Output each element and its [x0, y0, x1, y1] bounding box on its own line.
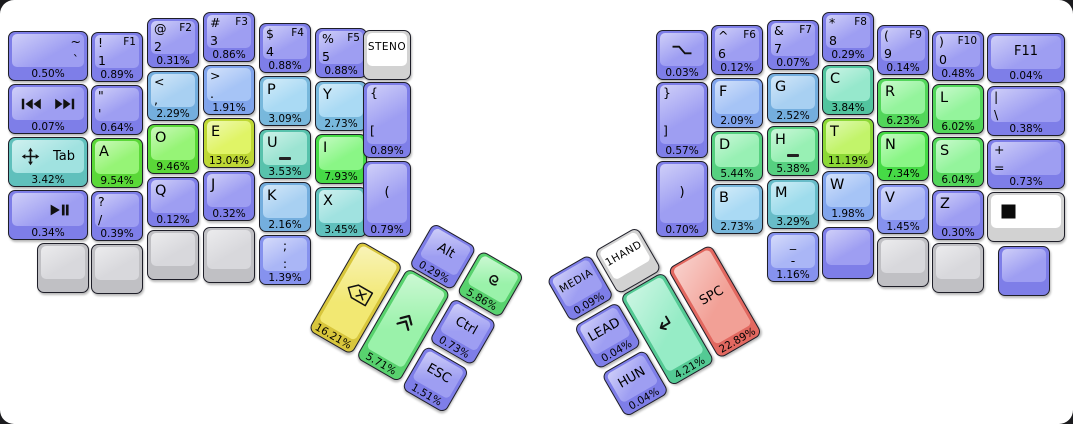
key-b[interactable]: B2.73%	[711, 184, 763, 234]
usage-percent: 7.93%	[316, 172, 366, 183]
usage-percent: 0.34%	[9, 228, 87, 239]
key-legend: O	[155, 131, 166, 146]
key-5[interactable]: %F550.88%	[315, 28, 367, 78]
key-legend: 0	[939, 54, 947, 67]
usage-percent: 11.19%	[823, 156, 873, 167]
key-face	[95, 247, 139, 280]
key-3[interactable]: #F330.86%	[203, 12, 255, 62]
key-legend: F	[719, 85, 727, 100]
key-icon-row	[661, 33, 703, 66]
key-legend: STENO	[364, 42, 410, 53]
key-legend: H	[775, 133, 786, 148]
key-legend: F4	[291, 28, 304, 39]
key-legend: "	[98, 90, 104, 103]
key-0[interactable]: )F1000.48%	[932, 31, 984, 81]
key-legend: !	[98, 37, 103, 50]
key-legend: ]	[663, 125, 668, 138]
key-f[interactable]: F2.09%	[711, 78, 763, 128]
key-legend: \	[994, 109, 998, 122]
key-legend: #	[210, 17, 220, 30]
key-legend: (	[884, 30, 889, 43]
usage-percent: 0.07%	[9, 122, 87, 133]
key-v[interactable]: V1.45%	[877, 184, 929, 234]
key-legend: F8	[854, 17, 867, 28]
usage-percent: 0.79%	[364, 225, 410, 236]
key-minus[interactable]: _-1.16%	[767, 232, 819, 282]
key-legend: V	[885, 191, 895, 206]
key-blank-r3[interactable]	[932, 243, 984, 293]
usage-percent: 0.29%	[823, 50, 873, 61]
key-l[interactable]: L6.02%	[932, 84, 984, 134]
sleep-icon	[670, 43, 694, 57]
key-legend: W	[830, 178, 844, 193]
key-legend: -	[768, 255, 818, 268]
key-legend: @	[154, 23, 167, 36]
usage-percent: 0.04%	[988, 71, 1064, 82]
key-e[interactable]: E13.04%	[203, 118, 255, 168]
key-6[interactable]: ^F660.12%	[711, 25, 763, 75]
key-comma[interactable]: <,2.29%	[147, 71, 199, 121]
usage-percent: 1.98%	[823, 209, 873, 220]
key-i[interactable]: I7.93%	[315, 134, 367, 184]
key-o[interactable]: O9.46%	[147, 124, 199, 174]
key-legend: $	[266, 28, 274, 41]
key-q[interactable]: Q0.12%	[147, 177, 199, 227]
key-blank-r4[interactable]	[998, 246, 1050, 296]
key-r[interactable]: R6.23%	[877, 78, 929, 128]
usage-percent: 1.45%	[878, 222, 928, 233]
usage-percent: 2.29%	[148, 109, 198, 120]
key-x[interactable]: X3.45%	[315, 187, 367, 237]
usage-percent: 0.38%	[988, 124, 1064, 135]
key-legend: 6	[718, 48, 726, 61]
usage-percent: 0.03%	[657, 68, 707, 79]
key-legend: 8	[829, 35, 837, 48]
enter-icon	[651, 311, 678, 337]
key-icon-row	[992, 195, 1060, 228]
key-legend: Q	[155, 184, 166, 199]
key-sleep[interactable]: 0.03%	[656, 30, 708, 80]
usage-percent: 3.29%	[768, 217, 818, 228]
key-face	[826, 230, 870, 265]
key-rbracket[interactable]: }]0.57%	[656, 82, 708, 158]
key-legend: M	[775, 186, 788, 201]
key-n[interactable]: N7.34%	[877, 131, 929, 181]
key-legend: Z	[940, 197, 950, 212]
key-legend: G	[775, 80, 786, 95]
key-2[interactable]: @F220.31%	[147, 18, 199, 68]
usage-percent: 0.86%	[204, 50, 254, 61]
key-legend: `	[73, 54, 79, 67]
key-legend: }	[663, 87, 671, 100]
usage-percent: 0.73%	[988, 177, 1064, 188]
key-legend: X	[323, 194, 333, 209]
key-legend: %	[322, 33, 334, 46]
usage-percent: 0.50%	[9, 69, 87, 80]
key-legend: =	[994, 162, 1004, 175]
key-stop[interactable]	[987, 192, 1065, 242]
key-4[interactable]: $F440.88%	[259, 23, 311, 73]
stop-square-icon	[1001, 204, 1016, 219]
usage-percent: 6.04%	[933, 175, 983, 186]
key-equals[interactable]: +=0.73%	[987, 139, 1065, 189]
key-lbracket[interactable]: {[0.89%	[363, 82, 411, 158]
usage-percent: 0.30%	[933, 228, 983, 239]
key-backslash[interactable]: |\0.38%	[987, 86, 1065, 136]
key-legend: D	[719, 138, 730, 153]
key-legend: 3	[210, 35, 218, 48]
key-legend: 7	[774, 43, 782, 56]
key-legend: )	[939, 36, 944, 49]
key-blank-l1[interactable]	[37, 243, 89, 293]
usage-percent: 3.84%	[823, 103, 873, 114]
usage-percent: 0.89%	[364, 146, 410, 157]
key-quote[interactable]: "'0.64%	[91, 85, 143, 135]
key-legend: F6	[743, 30, 756, 41]
usage-percent: 0.12%	[712, 63, 762, 74]
debian-swirl-icon	[480, 266, 506, 292]
backspace-icon	[342, 278, 374, 307]
key-s[interactable]: S6.04%	[932, 137, 984, 187]
usage-percent: 0.64%	[92, 123, 142, 134]
key-legend: (	[364, 186, 410, 199]
key-legend: R	[885, 85, 895, 100]
usage-percent: 7.34%	[878, 169, 928, 180]
key-c[interactable]: C3.84%	[822, 65, 874, 115]
usage-percent: 1.91%	[204, 103, 254, 114]
key-g[interactable]: G2.52%	[767, 73, 819, 123]
key-legend: K	[267, 189, 277, 204]
key-legend: E	[211, 125, 220, 140]
key-legend: 9	[884, 48, 892, 61]
key-legend: 5	[322, 51, 330, 64]
usage-percent: 1.39%	[260, 273, 310, 284]
key-legend: F11	[988, 45, 1064, 58]
key-legend: F10	[958, 36, 977, 47]
key-face	[41, 246, 85, 279]
play-pause-icon	[49, 203, 69, 217]
key-p[interactable]: P3.09%	[259, 76, 311, 126]
key-grave-tilde[interactable]: ~`0.50%	[8, 31, 88, 81]
key-legend: :	[260, 258, 310, 271]
homing-bar	[787, 154, 799, 156]
key-8[interactable]: *F880.29%	[822, 12, 874, 62]
key-face	[991, 89, 1061, 122]
shift-icon	[392, 306, 420, 334]
key-legend: +	[994, 144, 1004, 157]
usage-percent: 2.09%	[712, 116, 762, 127]
usage-percent: 2.52%	[768, 111, 818, 122]
key-legend: L	[940, 91, 948, 106]
usage-percent: 3.53%	[260, 167, 310, 178]
key-legend: 1	[98, 55, 106, 68]
key-legend: [	[370, 125, 375, 138]
usage-percent: 0.88%	[260, 61, 310, 72]
key-k[interactable]: K2.16%	[259, 182, 311, 232]
key-face	[881, 240, 925, 273]
usage-percent: 3.45%	[316, 225, 366, 236]
key-lparen[interactable]: (0.79%	[363, 161, 411, 237]
usage-percent: 13.04%	[204, 156, 254, 167]
key-legend: F2	[179, 23, 192, 34]
usage-percent: 0.12%	[148, 215, 198, 226]
key-legend: B	[719, 191, 729, 206]
key-u[interactable]: U3.53%	[259, 129, 311, 179]
key-legend: {	[370, 87, 378, 100]
homing-bar	[279, 157, 291, 159]
usage-percent: 6.02%	[933, 122, 983, 133]
usage-percent: 0.31%	[148, 56, 198, 67]
move-icon	[21, 147, 40, 166]
key-legend: ?	[98, 196, 105, 209]
key-a[interactable]: A9.54%	[91, 138, 143, 188]
key-blank-r2[interactable]	[877, 237, 929, 287]
key-w[interactable]: W1.98%	[822, 171, 874, 221]
key-legend: <	[154, 76, 164, 89]
keyboard-heatmap: ~`0.50%0.07%Tab3.42%0.34%!F110.89%"'0.64…	[0, 0, 1073, 424]
key-legend: F1	[123, 37, 136, 48]
key-face	[936, 246, 980, 279]
usage-percent: 3.42%	[9, 175, 87, 186]
key-legend: )	[657, 186, 707, 199]
usage-percent: 5.38%	[768, 164, 818, 175]
key-legend: N	[885, 138, 896, 153]
key-blank-l3[interactable]	[147, 230, 199, 280]
key-legend: ~	[71, 36, 81, 49]
key-legend: A	[99, 145, 109, 160]
key-legend: F7	[799, 25, 812, 36]
skip-next-icon	[54, 97, 75, 111]
key-9[interactable]: (F990.14%	[877, 25, 929, 75]
usage-percent: 0.39%	[92, 229, 142, 240]
key-legend: F3	[235, 17, 248, 28]
usage-percent: 3.09%	[260, 114, 310, 125]
key-j[interactable]: J0.32%	[203, 171, 255, 221]
usage-percent: 9.54%	[92, 176, 142, 187]
key-icon-row: Tab	[13, 140, 83, 173]
key-legend: _	[768, 237, 818, 250]
usage-percent: 0.07%	[768, 58, 818, 69]
key-tab-move[interactable]: Tab3.42%	[8, 137, 88, 187]
key-legend: ,	[154, 94, 158, 107]
usage-percent: 6.23%	[878, 116, 928, 127]
usage-percent: 0.48%	[933, 69, 983, 80]
key-y[interactable]: Y2.73%	[315, 81, 367, 131]
key-steno[interactable]: STENO	[363, 30, 411, 80]
key-face	[1002, 249, 1046, 282]
key-legend: 2	[154, 41, 162, 54]
key-legend: >	[210, 70, 220, 83]
key-legend: '	[98, 108, 101, 121]
usage-percent: 5.44%	[712, 169, 762, 180]
key-d[interactable]: D5.44%	[711, 131, 763, 181]
key-legend: P	[267, 83, 276, 98]
key-legend: |	[994, 91, 998, 104]
key-legend: C	[830, 72, 840, 87]
key-legend: J	[211, 178, 215, 193]
key-f11[interactable]: F110.04%	[987, 33, 1065, 83]
key-period[interactable]: >.1.91%	[203, 65, 255, 115]
key-legend: Tab	[53, 149, 75, 164]
key-legend: 4	[266, 46, 274, 59]
key-legend: ^	[718, 30, 728, 43]
key-legend: S	[940, 144, 949, 159]
key-t[interactable]: T11.19%	[822, 118, 874, 168]
key-h[interactable]: H5.38%	[767, 126, 819, 176]
key-legend: I	[323, 141, 327, 156]
key-icon-row	[13, 87, 83, 120]
usage-percent: 0.32%	[204, 209, 254, 220]
usage-percent: 9.46%	[148, 162, 198, 173]
key-rparen[interactable]: )0.70%	[656, 161, 708, 237]
key-legend: Y	[323, 88, 332, 103]
key-legend: ;	[260, 240, 310, 253]
usage-percent: 0.14%	[878, 63, 928, 74]
key-blank-l2[interactable]	[91, 244, 143, 294]
key-legend: T	[830, 125, 839, 140]
key-semicolon[interactable]: ;:1.39%	[259, 235, 311, 285]
usage-percent: 0.57%	[657, 146, 707, 157]
key-7[interactable]: &F770.07%	[767, 20, 819, 70]
key-icon-row	[13, 193, 83, 226]
key-legend: *	[829, 17, 835, 30]
usage-percent: 2.73%	[712, 222, 762, 233]
key-legend: .	[210, 88, 214, 101]
key-legend: F9	[909, 30, 922, 41]
key-media-prev-next[interactable]: 0.07%	[8, 84, 88, 134]
key-z[interactable]: Z0.30%	[932, 190, 984, 240]
usage-percent: 1.16%	[768, 270, 818, 281]
usage-percent: 0.89%	[92, 70, 142, 81]
key-blank-l4[interactable]	[203, 227, 255, 283]
key-legend: F5	[347, 33, 360, 44]
key-1[interactable]: !F110.89%	[91, 32, 143, 82]
key-face	[151, 233, 195, 266]
usage-percent: 0.88%	[316, 66, 366, 77]
usage-percent: 2.16%	[260, 220, 310, 231]
usage-percent: 2.73%	[316, 119, 366, 130]
key-face	[207, 230, 251, 269]
key-legend: &	[774, 25, 784, 38]
key-legend: U	[267, 136, 278, 151]
skip-previous-icon	[21, 97, 42, 111]
usage-percent: 0.70%	[657, 225, 707, 236]
key-legend: /	[98, 214, 102, 227]
key-blank-r1[interactable]	[822, 227, 874, 279]
key-m[interactable]: M3.29%	[767, 179, 819, 229]
key-slash[interactable]: ?/0.39%	[91, 191, 143, 241]
key-play-pause[interactable]: 0.34%	[8, 190, 88, 240]
